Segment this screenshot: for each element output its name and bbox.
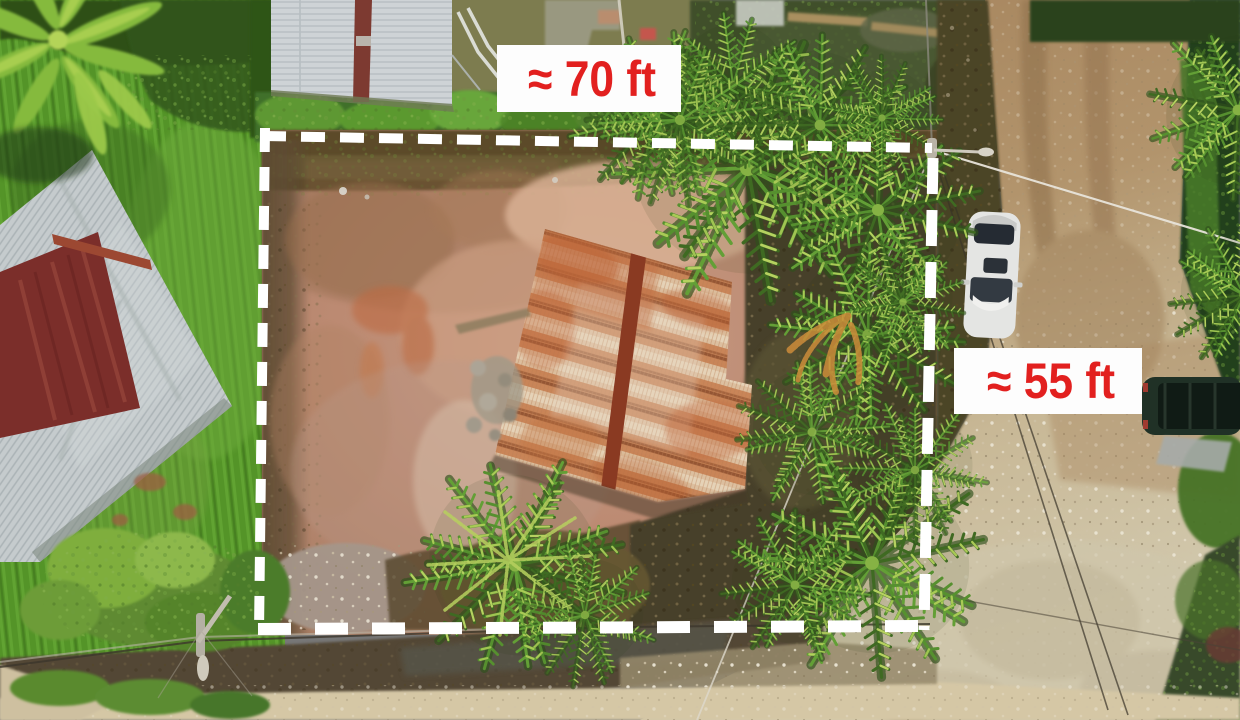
svg-text:≈ 55 ft: ≈ 55 ft	[987, 353, 1115, 409]
svg-text:≈ 70 ft: ≈ 70 ft	[528, 51, 656, 107]
